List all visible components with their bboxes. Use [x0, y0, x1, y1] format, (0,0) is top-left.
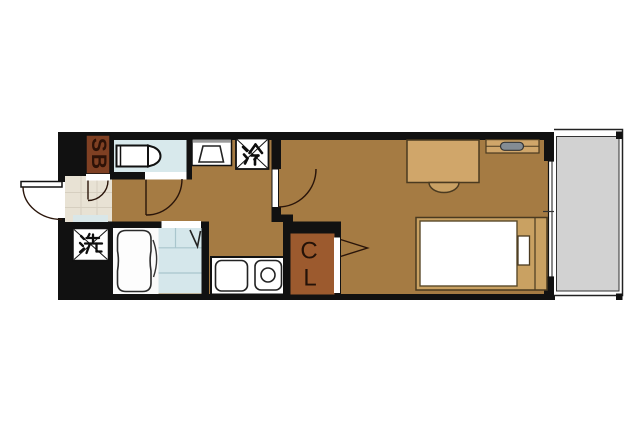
- svg-text:C: C: [300, 238, 317, 265]
- svg-text:SB: SB: [87, 138, 110, 171]
- svg-text:L: L: [303, 265, 316, 292]
